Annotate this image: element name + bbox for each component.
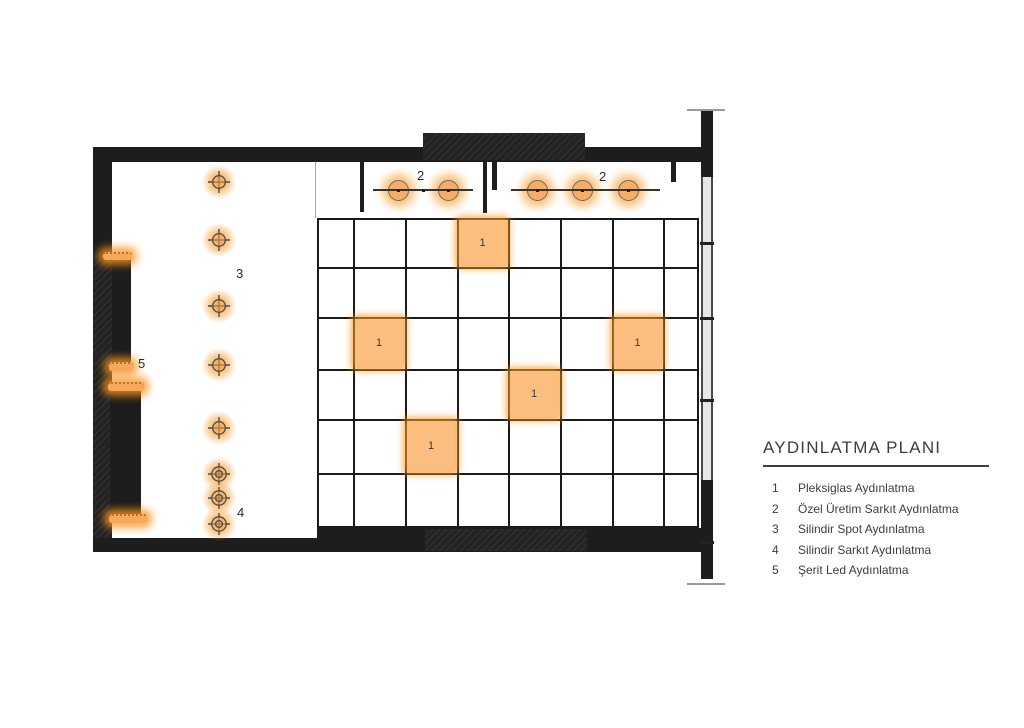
ceiling-grid-line-horizontal xyxy=(317,369,699,371)
wall-top xyxy=(93,147,713,162)
cylinder-spot-light xyxy=(201,347,237,383)
window-mullion xyxy=(700,317,714,320)
plexiglass-light-panel: 1 xyxy=(355,319,403,367)
panel-number-label: 1 xyxy=(428,440,434,452)
ceiling-grid-line-vertical xyxy=(697,218,699,528)
legend-item-label: Silindir Spot Aydınlatma xyxy=(798,519,925,540)
cylinder-spot-light xyxy=(201,164,237,200)
pendant-group-number-label: 2 xyxy=(417,168,424,183)
wall-bottom-beam xyxy=(425,529,587,551)
wall-top-beam xyxy=(423,133,585,160)
cylinder-spot-light xyxy=(201,288,237,324)
cylinder-pendant-light xyxy=(201,506,237,542)
window-glazing xyxy=(701,177,713,480)
ceiling-grid-line-vertical xyxy=(317,218,319,528)
wall-stub xyxy=(671,162,676,182)
wall-left-pier-lower xyxy=(110,389,141,514)
legend-item-number: 1 xyxy=(763,478,798,499)
legend-item: 5 Şerit Led Aydınlatma xyxy=(763,560,989,581)
ceiling-grid-line-horizontal xyxy=(317,526,699,528)
cylinder-spot-light xyxy=(201,222,237,258)
legend: AYDINLATMA PLANI 1 Pleksiglas Aydınlatma… xyxy=(763,438,989,581)
legend-item-label: Özel Üretim Sarkıt Aydınlatma xyxy=(798,499,959,520)
legend-item-label: Pleksiglas Aydınlatma xyxy=(798,478,915,499)
lighting-plan: 1111122345 xyxy=(0,0,1024,728)
ceiling-grid-line-horizontal xyxy=(317,267,699,269)
legend-title: AYDINLATMA PLANI xyxy=(763,438,989,467)
pendant-mount-dot xyxy=(447,189,450,192)
plexiglass-light-panel: 1 xyxy=(614,319,661,367)
legend-item-number: 5 xyxy=(763,560,798,581)
legend-item-number: 4 xyxy=(763,540,798,561)
legend-item: 1 Pleksiglas Aydınlatma xyxy=(763,478,989,499)
ceiling-grid-line-horizontal xyxy=(317,473,699,475)
pendant-group-number-label: 2 xyxy=(599,169,606,184)
wall-left-pier-upper xyxy=(112,257,131,363)
panel-number-label: 1 xyxy=(376,337,382,349)
wall-stub xyxy=(360,162,364,212)
ceiling-grid-line-vertical xyxy=(353,218,355,528)
pendant-mount-line xyxy=(511,189,660,191)
legend-items: 1 Pleksiglas Aydınlatma 2 Özel Üretim Sa… xyxy=(763,478,989,581)
window-cap-bottom xyxy=(687,583,725,585)
pendant-mount-dot xyxy=(536,189,539,192)
led-strip-light xyxy=(103,252,132,260)
ceiling-grid-line-vertical xyxy=(612,218,614,528)
legend-item: 2 Özel Üretim Sarkıt Aydınlatma xyxy=(763,499,989,520)
wall-stub xyxy=(483,162,487,213)
pendant-mount-dot xyxy=(627,189,630,192)
plexiglass-light-panel: 1 xyxy=(459,220,506,265)
ceiling-grid-line-vertical xyxy=(663,218,665,528)
wall-stub xyxy=(492,162,497,190)
window-mullion xyxy=(700,399,714,402)
window-mullion xyxy=(700,541,714,544)
pendant-mount-dot xyxy=(422,189,425,192)
legend-item-number: 2 xyxy=(763,499,798,520)
ceiling-grid-line-horizontal xyxy=(317,218,699,220)
fixture-type-number-label: 5 xyxy=(138,356,145,371)
legend-item: 4 Silindir Sarkıt Aydınlatma xyxy=(763,540,989,561)
window-column-bottom xyxy=(701,480,713,579)
legend-item-label: Silindir Sarkıt Aydınlatma xyxy=(798,540,931,561)
led-strip-light xyxy=(109,362,133,371)
legend-item-number: 3 xyxy=(763,519,798,540)
fixture-type-number-label: 3 xyxy=(236,266,243,281)
plexiglass-light-panel: 1 xyxy=(510,371,558,417)
legend-item-label: Şerit Led Aydınlatma xyxy=(798,560,909,581)
pendant-mount-dot xyxy=(581,189,584,192)
cylinder-spot-light xyxy=(201,410,237,446)
pendant-mount-dot xyxy=(397,189,400,192)
window-column-top xyxy=(701,111,713,177)
window-mullion xyxy=(700,242,714,245)
wall-left-upper xyxy=(93,147,112,252)
fixture-type-number-label: 4 xyxy=(237,505,244,520)
room-divider-line xyxy=(315,162,316,218)
panel-number-label: 1 xyxy=(531,388,537,400)
ceiling-grid-line-horizontal xyxy=(317,419,699,421)
led-strip-light xyxy=(108,382,144,391)
ceiling-grid-line-vertical xyxy=(560,218,562,528)
plexiglass-light-panel: 1 xyxy=(407,421,455,471)
legend-item: 3 Silindir Spot Aydınlatma xyxy=(763,519,989,540)
panel-number-label: 1 xyxy=(479,237,485,249)
led-strip-light xyxy=(109,514,147,523)
panel-number-label: 1 xyxy=(634,337,640,349)
ceiling-grid-line-vertical xyxy=(405,218,407,528)
